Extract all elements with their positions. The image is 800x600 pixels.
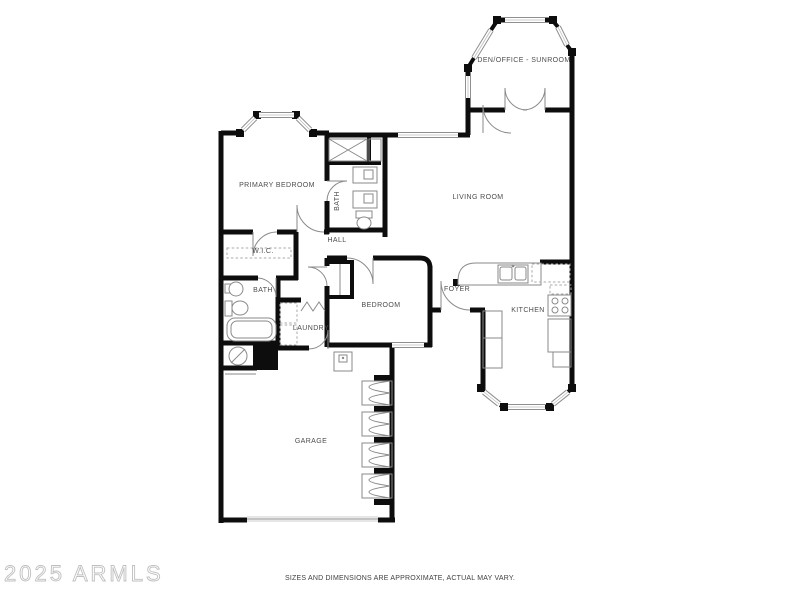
kitchen-counter-sink bbox=[458, 263, 541, 285]
primary-bedroom-door bbox=[297, 205, 324, 232]
room-label-laundry: LAUNDRY bbox=[293, 325, 329, 332]
primary-closet-shelving bbox=[329, 139, 381, 161]
bath-pedestal-sink bbox=[225, 282, 243, 296]
floor-plan-page: DEN/OFFICE - SUNROOM LIVING ROOM PRIMARY… bbox=[0, 0, 800, 600]
room-label-den-office-sunroom: DEN/OFFICE - SUNROOM bbox=[477, 57, 570, 64]
kitchen-refrigerator bbox=[483, 311, 502, 368]
laundry-bifold-doors bbox=[301, 302, 325, 311]
room-label-hall: HALL bbox=[327, 237, 346, 244]
mechanical-unit bbox=[334, 352, 352, 371]
room-label-bath-2: BATH bbox=[253, 287, 273, 294]
bath-toilet bbox=[225, 301, 248, 316]
room-label-primary-bedroom: PRIMARY BEDROOM bbox=[239, 182, 315, 189]
armls-watermark: 2025 ARMLS bbox=[4, 561, 164, 586]
room-label-bedroom: BEDROOM bbox=[362, 302, 401, 309]
room-label-primary-bath: BATH bbox=[334, 191, 341, 211]
primary-toilet bbox=[356, 211, 372, 229]
primary-bay-windows bbox=[243, 115, 310, 130]
kitchen-stove bbox=[548, 295, 571, 316]
floor-plan-drawing: DEN/OFFICE - SUNROOM LIVING ROOM PRIMARY… bbox=[0, 0, 800, 600]
water-heater bbox=[229, 347, 247, 365]
laundry-washer-dryer bbox=[280, 303, 297, 345]
room-label-living-room: LIVING ROOM bbox=[452, 194, 503, 201]
bathtub bbox=[227, 318, 276, 341]
disclaimer-text: SIZES AND DIMENSIONS ARE APPROXIMATE, AC… bbox=[285, 575, 515, 582]
room-label-foyer: FOYER bbox=[444, 286, 470, 293]
kitchen-counter-right bbox=[548, 319, 571, 367]
den-french-doors bbox=[505, 88, 545, 110]
room-label-wic: W.I.C. bbox=[252, 248, 273, 255]
garage-door bbox=[247, 515, 378, 524]
doors-layer bbox=[253, 88, 545, 498]
room-label-kitchen: KITCHEN bbox=[511, 307, 545, 314]
hall-closet-door bbox=[308, 267, 327, 286]
room-label-garage: GARAGE bbox=[295, 438, 327, 445]
kitchen-bay-windows bbox=[484, 392, 568, 407]
primary-vanity-sinks bbox=[353, 167, 377, 208]
